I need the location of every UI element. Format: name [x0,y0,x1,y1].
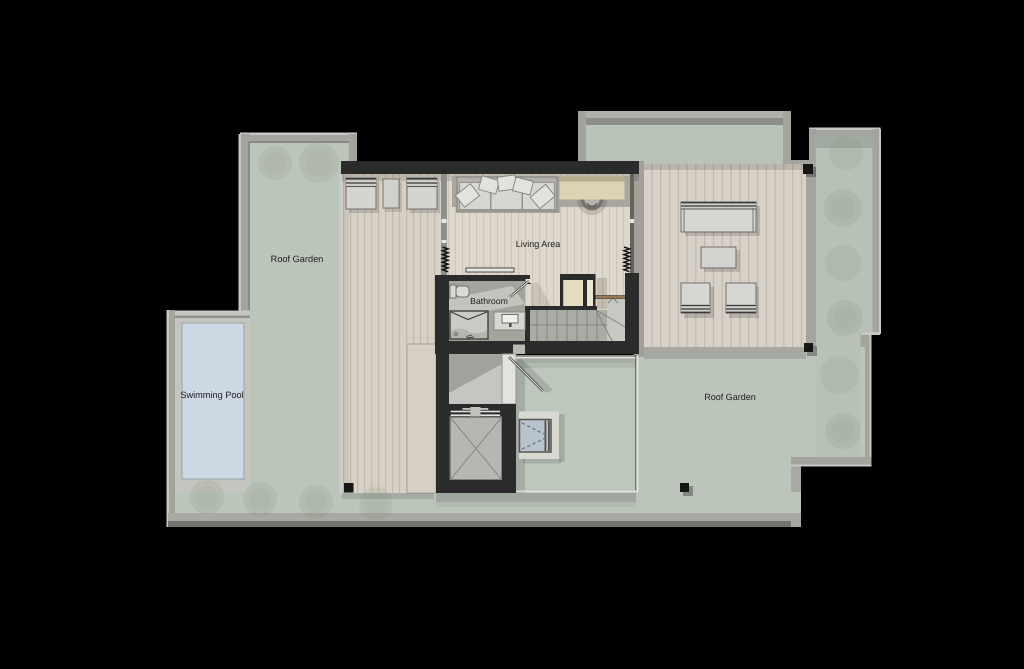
svg-text:Roof Garden: Roof Garden [271,254,324,264]
svg-text:Bathroom: Bathroom [470,296,508,306]
svg-text:Swimming Pool: Swimming Pool [180,390,243,400]
svg-text:Living Area: Living Area [516,239,561,249]
svg-text:Roof Garden: Roof Garden [704,392,756,402]
